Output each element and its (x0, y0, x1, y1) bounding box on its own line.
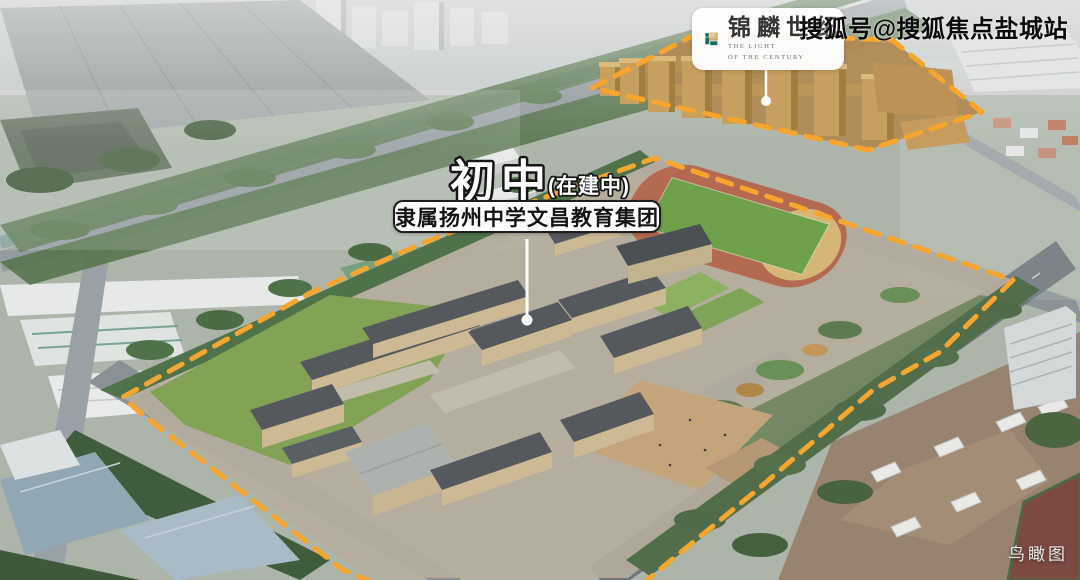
sohu-watermark: 搜狐号@搜狐焦点盐城站 (799, 9, 1068, 44)
school-label-subtitle: 隶属扬州中学文昌教育集团 (393, 200, 661, 233)
logo-en-line1: THE LIGHT (728, 43, 844, 51)
aerial-scene: 初中 (在建中) (0, 0, 1080, 580)
aerial-rendering-page: 初中 (在建中) 锦麟世纪 THE LIGHT OF THE CENTURY 搜… (0, 0, 1080, 580)
birdview-caption: 鸟瞰图 (1008, 540, 1068, 565)
logo-en-line2: OF THE CENTURY (728, 54, 844, 62)
jinlin-logo-mark (705, 19, 718, 59)
school-label-status: (在建中) (548, 174, 630, 198)
